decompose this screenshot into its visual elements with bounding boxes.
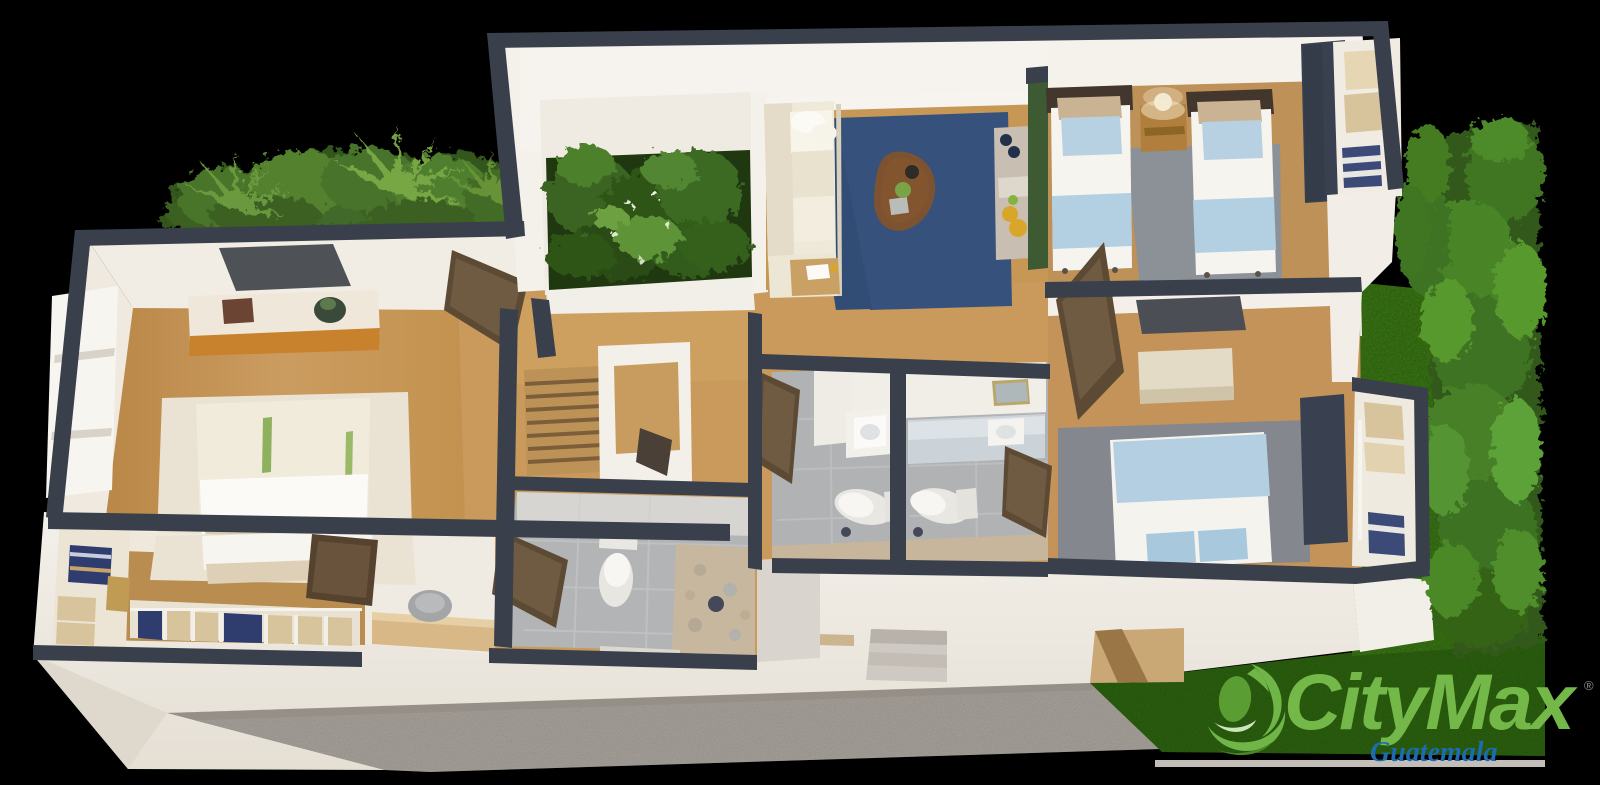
svg-text:Guatemala: Guatemala bbox=[1370, 737, 1498, 768]
svg-text:®: ® bbox=[1584, 678, 1594, 693]
svg-text:CityMax: CityMax bbox=[1284, 657, 1578, 746]
